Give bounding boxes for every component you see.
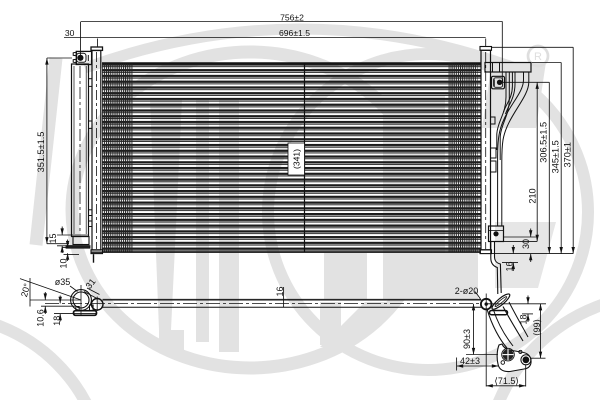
svg-text:2-ø20: 2-ø20	[455, 286, 479, 296]
svg-text:⟨99⟩: ⟨99⟩	[532, 319, 542, 336]
svg-text:42±3: 42±3	[460, 356, 480, 366]
svg-text:351.5±1.5: 351.5±1.5	[36, 132, 46, 173]
svg-text:R: R	[534, 51, 542, 63]
svg-text:30: 30	[65, 28, 75, 38]
svg-text:210: 210	[528, 188, 538, 203]
svg-text:696±1.5: 696±1.5	[279, 28, 310, 38]
svg-text:ø35: ø35	[55, 277, 71, 287]
svg-text:18: 18	[52, 316, 62, 326]
svg-text:⟨71.5⟩: ⟨71.5⟩	[494, 376, 519, 386]
svg-text:(341): (341)	[292, 149, 302, 169]
svg-text:306.5±1.5: 306.5±1.5	[539, 122, 549, 163]
svg-text:16: 16	[275, 286, 285, 296]
svg-text:10.6: 10.6	[36, 309, 46, 327]
svg-text:756±2: 756±2	[280, 12, 304, 22]
svg-text:10: 10	[59, 258, 69, 268]
svg-text:345±1.5: 345±1.5	[551, 140, 561, 173]
svg-text:18: 18	[519, 314, 529, 324]
svg-text:90±3: 90±3	[462, 329, 472, 349]
svg-text:30: 30	[521, 239, 531, 249]
svg-text:15: 15	[48, 233, 58, 243]
svg-text:370±1: 370±1	[562, 142, 572, 167]
svg-text:16: 16	[504, 261, 514, 271]
